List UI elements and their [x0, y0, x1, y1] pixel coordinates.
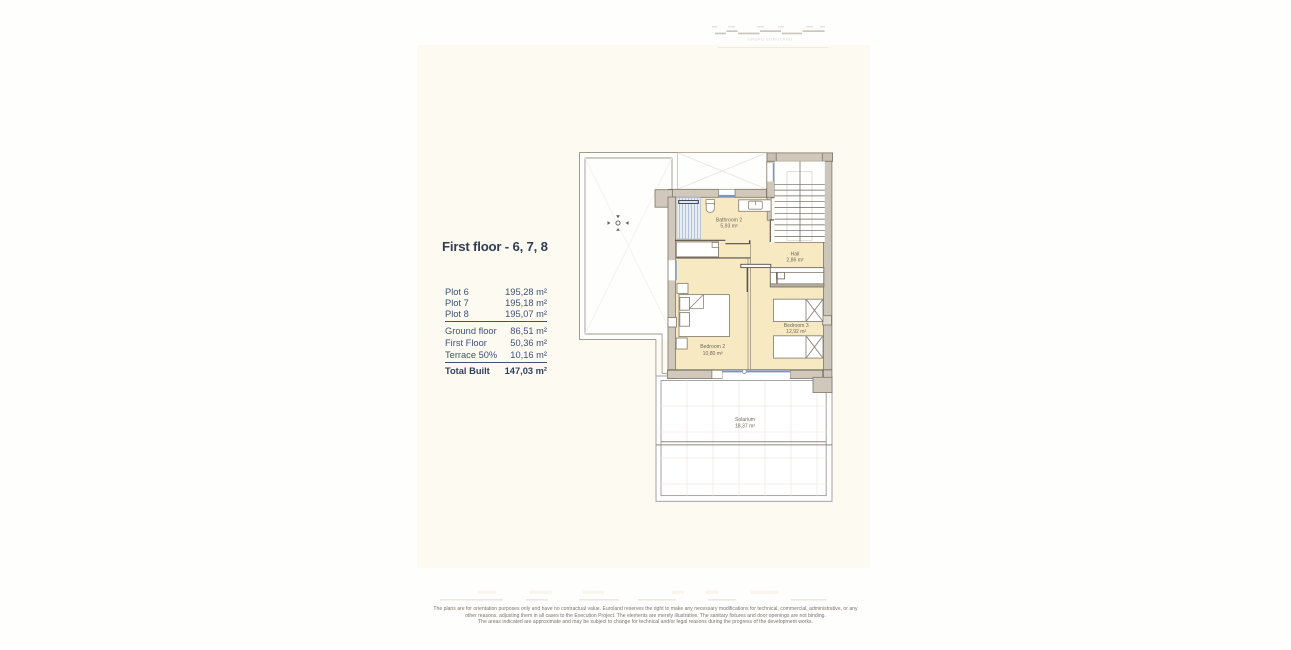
svg-text:5,93 m²: 5,93 m² [720, 224, 738, 230]
svg-text:Bedroom 2: Bedroom 2 [700, 344, 725, 350]
svg-text:GRUPO EUROLAND: GRUPO EUROLAND [747, 37, 792, 42]
svg-text:2,86 m²: 2,86 m² [786, 257, 804, 263]
svg-text:12,92 m²: 12,92 m² [786, 329, 806, 335]
svg-text:10,80 m²: 10,80 m² [703, 351, 723, 357]
svg-text:Solarium: Solarium [735, 417, 755, 423]
svg-text:18,37 m²: 18,37 m² [735, 423, 755, 429]
